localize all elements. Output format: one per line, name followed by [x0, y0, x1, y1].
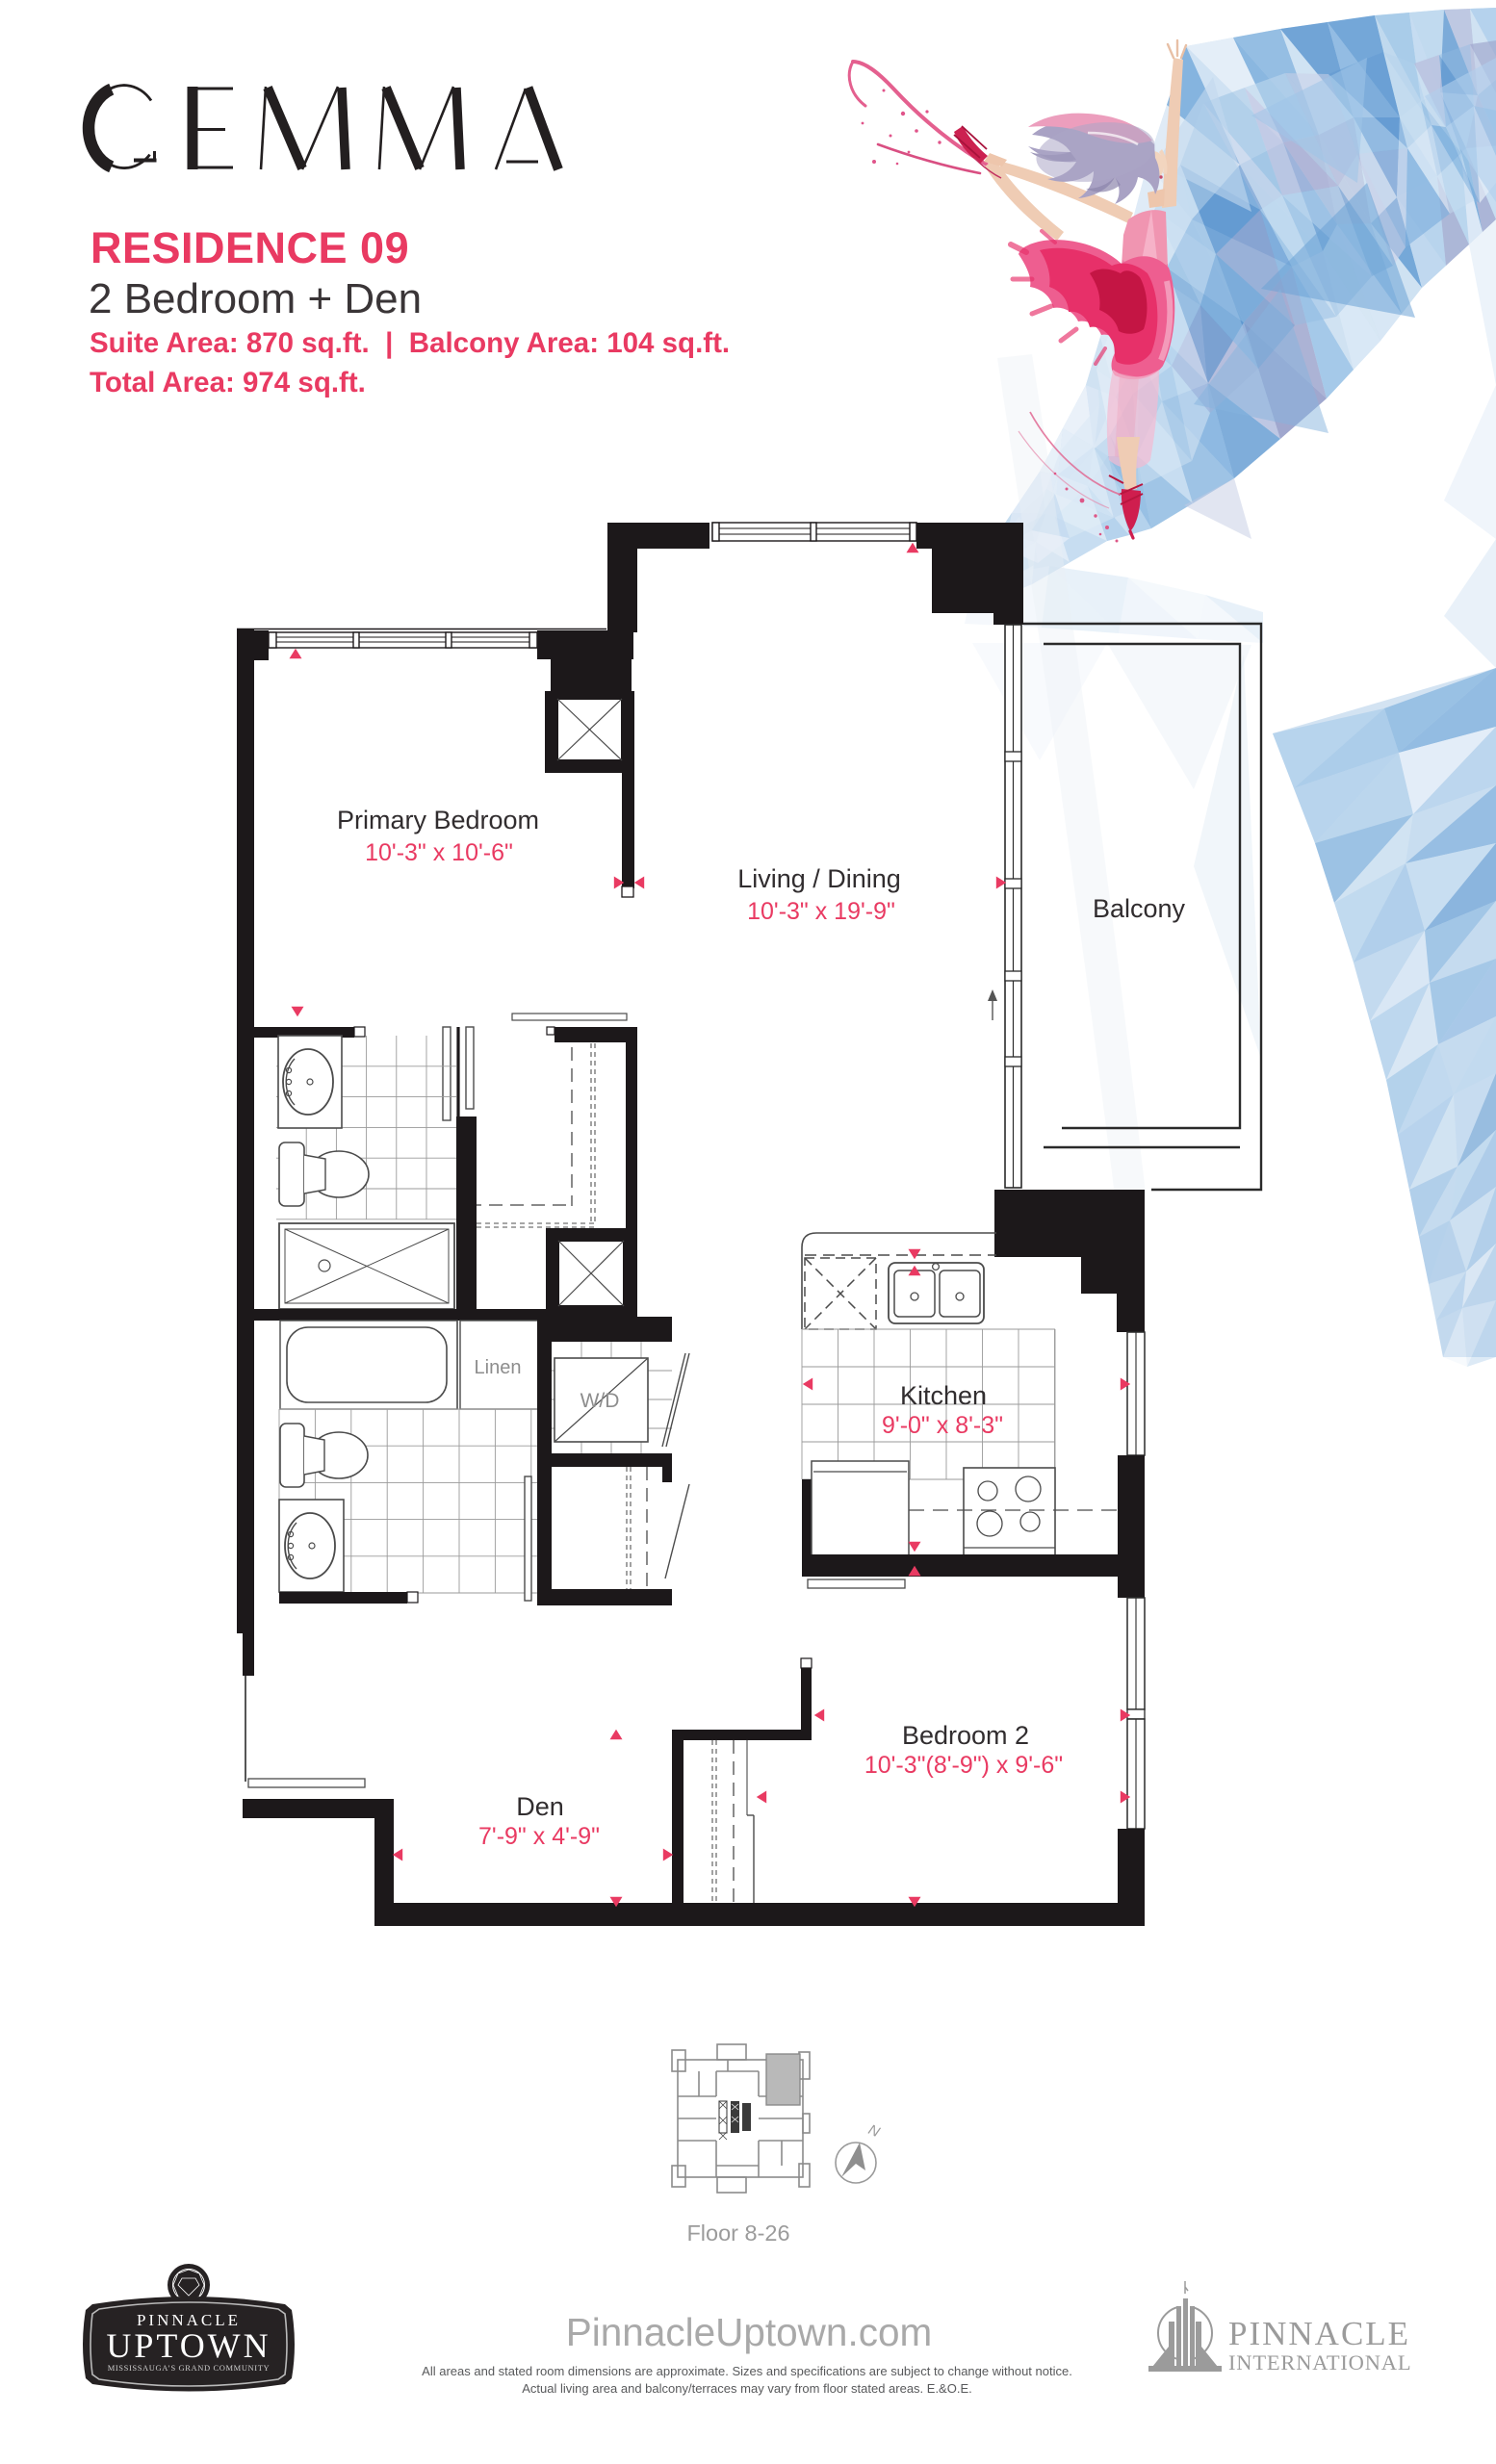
- svg-text:7'-9" x 4'-9": 7'-9" x 4'-9": [478, 1823, 600, 1850]
- svg-text:Linen: Linen: [475, 1357, 522, 1378]
- svg-text:UPTOWN: UPTOWN: [106, 2326, 271, 2365]
- svg-text:Den: Den: [516, 1792, 564, 1821]
- svg-text:Primary Bedroom: Primary Bedroom: [337, 806, 539, 834]
- svg-text:Balcony: Balcony: [1093, 894, 1186, 923]
- svg-text:Living / Dining: Living / Dining: [737, 864, 901, 893]
- svg-text:10'-3" x 19'-9": 10'-3" x 19'-9": [747, 898, 895, 925]
- svg-text:Bedroom 2: Bedroom 2: [902, 1721, 1029, 1750]
- svg-text:9'-0" x 8'-3": 9'-0" x 8'-3": [882, 1412, 1003, 1439]
- svg-text:PINNACLE: PINNACLE: [1228, 2315, 1410, 2352]
- svg-text:INTERNATIONAL: INTERNATIONAL: [1228, 2350, 1411, 2374]
- svg-text:10'-3" x 10'-6": 10'-3" x 10'-6": [365, 839, 513, 866]
- svg-text:10'-3"(8'-9") x 9'-6": 10'-3"(8'-9") x 9'-6": [864, 1752, 1063, 1779]
- svg-text:Floor 8-26: Floor 8-26: [686, 2220, 789, 2246]
- svg-text:MISSISSAUGA’S GRAND COMMUNITY: MISSISSAUGA’S GRAND COMMUNITY: [108, 2363, 271, 2373]
- svg-text:Kitchen: Kitchen: [900, 1381, 987, 1410]
- svg-text:PinnacleUptown.com: PinnacleUptown.com: [566, 2310, 932, 2354]
- svg-text:Suite Area: 870 sq.ft. | Bal: Suite Area: 870 sq.ft. | Balcony Area: 1…: [90, 327, 730, 359]
- svg-text:Total Area: 974 sq.ft.: Total Area: 974 sq.ft.: [90, 367, 366, 398]
- svg-text:W/D: W/D: [580, 1390, 620, 1412]
- svg-text:2 Bedroom + Den: 2 Bedroom + Den: [89, 275, 422, 322]
- svg-text:Actual living area and balcony: Actual living area and balcony/terraces …: [522, 2381, 972, 2396]
- svg-text:All areas and stated room dime: All areas and stated room dimensions are…: [422, 2364, 1072, 2378]
- svg-text:RESIDENCE 09: RESIDENCE 09: [90, 223, 409, 272]
